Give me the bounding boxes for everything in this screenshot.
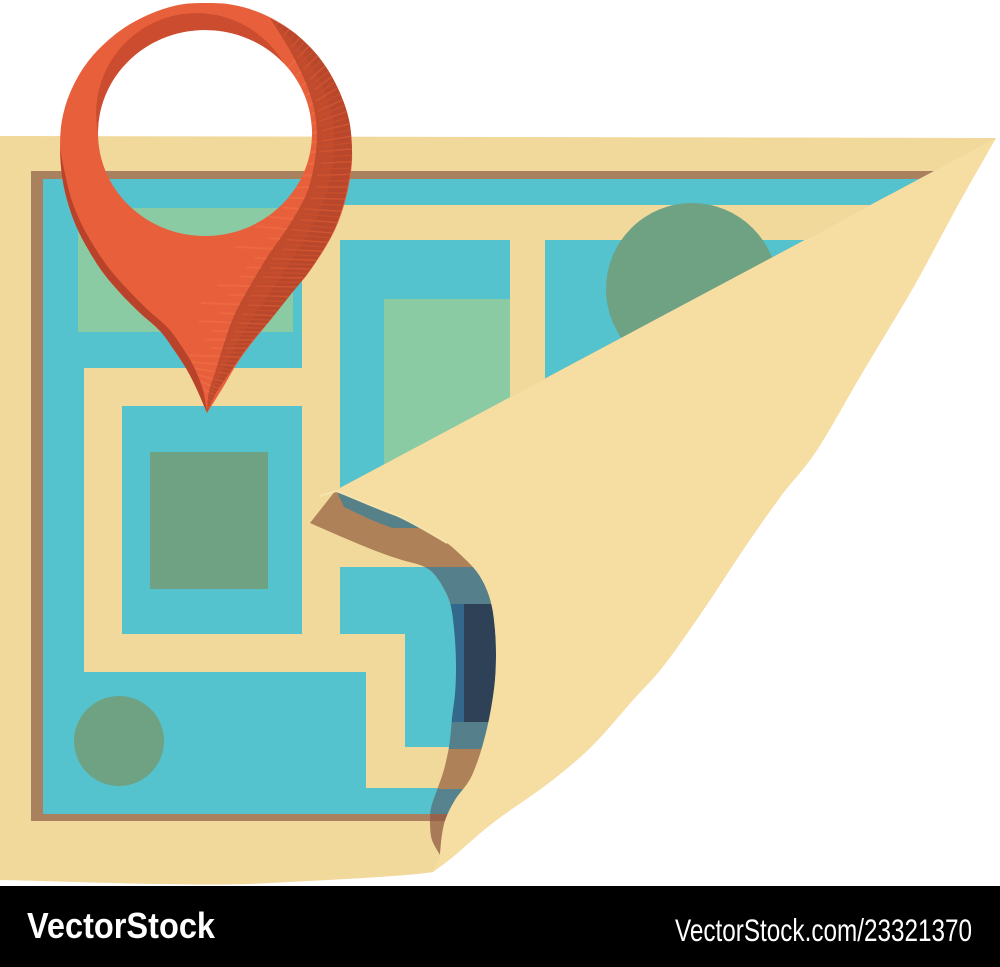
svg-text:VectorStock: VectorStock	[27, 905, 216, 946]
svg-text:VectorStock.com/23321370: VectorStock.com/23321370	[675, 912, 972, 948]
